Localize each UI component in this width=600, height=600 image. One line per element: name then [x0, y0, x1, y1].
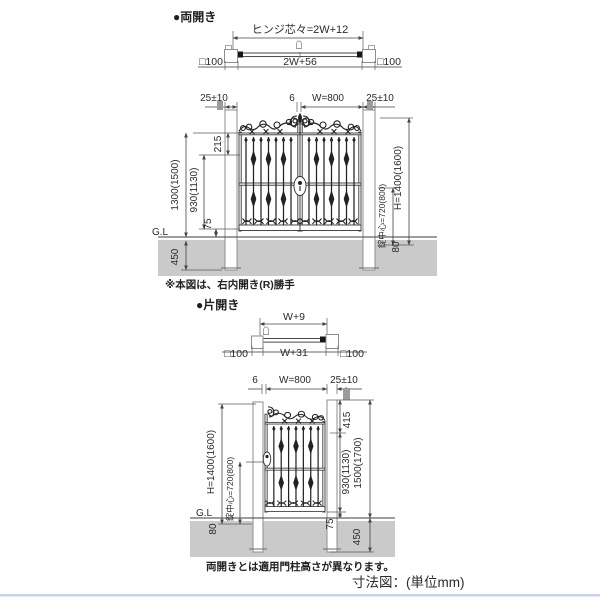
- single-gate-handle: [263, 452, 271, 466]
- center-crest-ornament: [290, 113, 310, 134]
- single-post-height-dim: 1500(1700): [353, 437, 364, 488]
- single-below-gl-dim: 80: [208, 523, 219, 535]
- single-body-height-dim: 930(1130): [341, 450, 352, 495]
- single-post-size-right-label: □100: [340, 348, 364, 360]
- single-ground-level-label: G.L: [196, 508, 213, 519]
- gate-post-right: [363, 110, 375, 270]
- below-gl-dim: 80: [391, 241, 402, 253]
- post-size-right-label: □100: [377, 56, 401, 68]
- unit-note: 寸法図：(単位mm): [352, 575, 464, 590]
- single-lock-center-dim: 錠中心=720(800): [225, 457, 235, 522]
- plan-post-left: [225, 50, 238, 63]
- single-hinge-dim-label: W+9: [283, 311, 305, 323]
- double-section-label: ●両開き: [173, 10, 216, 24]
- double-gate-section: ●両開き ヒンジ芯々=2W+12: [152, 10, 437, 291]
- top-offset-dim: 215: [213, 135, 224, 152]
- single-elevation-top-dims: [248, 384, 362, 400]
- single-gate-height-dim: H=1400(1600): [206, 430, 217, 494]
- double-elevation: 25±10 6 W=800 25±10: [152, 93, 437, 276]
- hinge-pitch-dim-label: ヒンジ芯々=2W+12: [252, 22, 349, 36]
- single-ground-hatch: [190, 521, 395, 557]
- single-plan-post-left: [252, 336, 264, 349]
- overall-width-label: 2W+56: [283, 56, 317, 68]
- gate-leaf-left: [239, 116, 300, 231]
- plan-post-right: [363, 50, 376, 63]
- single-bottom-clearance-dim: 75: [325, 518, 336, 530]
- leaf-width-label: W=800: [312, 93, 344, 104]
- gate-height-dim: H=1400(1600): [393, 146, 404, 210]
- post-size-left-label: □100: [199, 56, 223, 68]
- single-section-label: ●片開き: [196, 297, 239, 312]
- single-gate-leaf: [265, 407, 325, 512]
- single-top-offset-dim: 415: [342, 411, 353, 428]
- single-elevation: 6 W=800 25±10: [190, 375, 395, 557]
- gate-dimension-drawing: ●両開き ヒンジ芯々=2W+12: [0, 0, 600, 600]
- section-divider-rule: [0, 594, 600, 597]
- single-width-label: W+31: [280, 347, 308, 359]
- footer: 両開きとは適用門柱高さが異なります。 寸法図：(単位mm): [0, 560, 600, 597]
- offset-left-label: 25±10: [200, 93, 228, 104]
- dimension-diagram-page: ●両開き ヒンジ芯々=2W+12: [0, 0, 600, 600]
- ground-level-label: G.L: [152, 227, 169, 238]
- gap-label: 6: [289, 93, 295, 104]
- post-height-difference-note: 両開きとは適用門柱高さが異なります。: [206, 560, 394, 573]
- single-gap-label: 6: [252, 375, 258, 386]
- gate-leaf-right: [300, 116, 361, 231]
- double-gate-note: ※本図は、右内開き(R)勝手: [165, 278, 295, 291]
- embed-depth-dim: 450: [170, 248, 181, 265]
- double-plan-view: ヒンジ芯々=2W+12: [198, 22, 402, 70]
- lock-center-dim: 錠中心=720(800): [377, 184, 387, 249]
- gate-handle: [294, 177, 306, 196]
- body-height-dim: 930(1130): [189, 168, 200, 213]
- single-offset-right-label: 25±10: [330, 375, 358, 386]
- double-right-dims: H=1400(1600) 錠中心=720(800) 80: [377, 118, 414, 253]
- single-post-size-left-label: □100: [224, 348, 248, 360]
- single-leaf-width-label: W=800: [279, 375, 311, 386]
- single-embed-depth-dim: 450: [352, 528, 363, 545]
- single-swing-direction-icon: [264, 327, 269, 335]
- single-plan-gate-bar: [263, 337, 326, 343]
- single-plan-post-right: [326, 335, 339, 349]
- post-height-dim: 1300(1500): [170, 159, 181, 210]
- gate-post-left: [225, 110, 237, 270]
- swing-direction-icon: [297, 41, 302, 49]
- single-gate-section: ●片開き W+9 □100 W+31: [190, 297, 395, 557]
- bottom-clearance-dim: 75: [203, 218, 214, 230]
- single-post-left: [253, 402, 263, 552]
- single-plan-view: W+9 □100 W+31 □100: [222, 311, 367, 360]
